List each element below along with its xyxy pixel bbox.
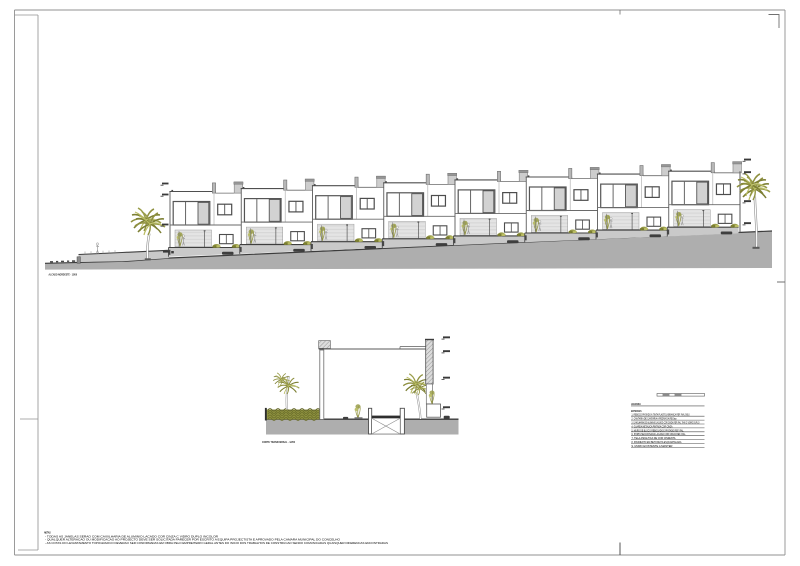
svg-text:NOTAS: NOTAS <box>44 530 51 534</box>
svg-text:ALCADO NORDESTE - 1/200: ALCADO NORDESTE - 1/200 <box>49 273 78 277</box>
svg-text:- AS COTAS DO LEVANTAMENTO TOP: - AS COTAS DO LEVANTAMENTO TOPOGRAFICO D… <box>45 542 388 545</box>
svg-text:MATERIAIS: MATERIAIS <box>631 409 642 413</box>
svg-text:CORTE TRANSVERSAL - 1/200: CORTE TRANSVERSAL - 1/200 <box>262 440 295 444</box>
